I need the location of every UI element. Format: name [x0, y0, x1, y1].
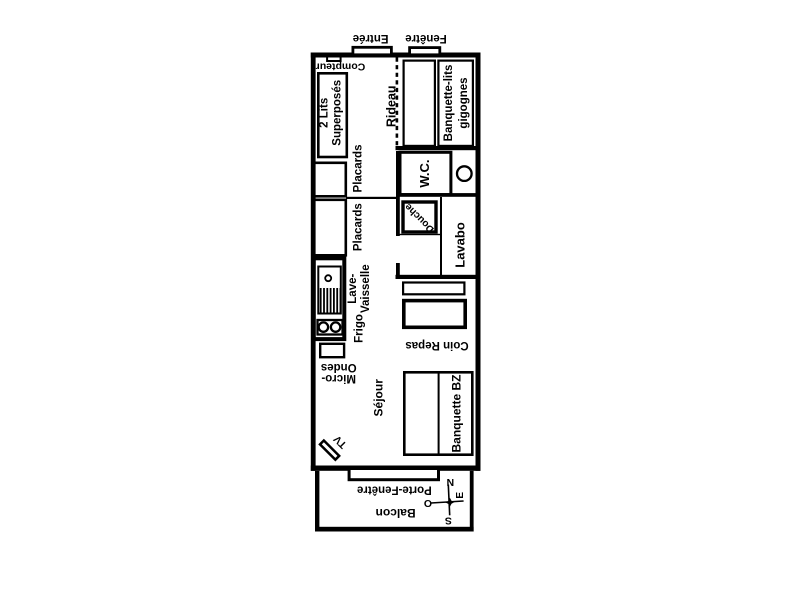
svg-text:Banquette BZ: Banquette BZ [449, 375, 463, 453]
svg-text:S: S [445, 515, 452, 527]
svg-text:O: O [424, 497, 432, 509]
svg-text:gigognes: gigognes [458, 77, 470, 128]
svg-text:E: E [455, 492, 466, 499]
svg-text:2 Lits: 2 Lits [319, 98, 331, 128]
svg-text:N: N [447, 476, 455, 488]
svg-text:W.C.: W.C. [417, 160, 432, 188]
svg-text:Ondes: Ondes [321, 361, 357, 373]
svg-text:Coin Repas: Coin Repas [405, 339, 468, 351]
svg-text:Entrée: Entrée [353, 32, 389, 44]
svg-text:Banquette-lits: Banquette-lits [443, 65, 455, 142]
svg-text:Placards: Placards [353, 203, 365, 251]
svg-text:Fenêtre: Fenêtre [405, 32, 447, 44]
svg-text:Superposés: Superposés [331, 80, 343, 146]
svg-text:Vaisselle: Vaisselle [360, 264, 372, 313]
svg-text:Frigo: Frigo [353, 314, 365, 343]
svg-text:Séjour: Séjour [372, 379, 386, 417]
svg-text:Lave-: Lave- [347, 274, 359, 304]
svg-text:Rideau: Rideau [385, 85, 399, 127]
svg-text:Porte-Fenêtre: Porte-Fenêtre [357, 484, 432, 496]
svg-text:Compteur: Compteur [316, 60, 366, 72]
svg-text:Lavabo: Lavabo [453, 222, 468, 268]
svg-text:Placards: Placards [353, 145, 365, 193]
svg-text:Balcon: Balcon [376, 506, 416, 520]
